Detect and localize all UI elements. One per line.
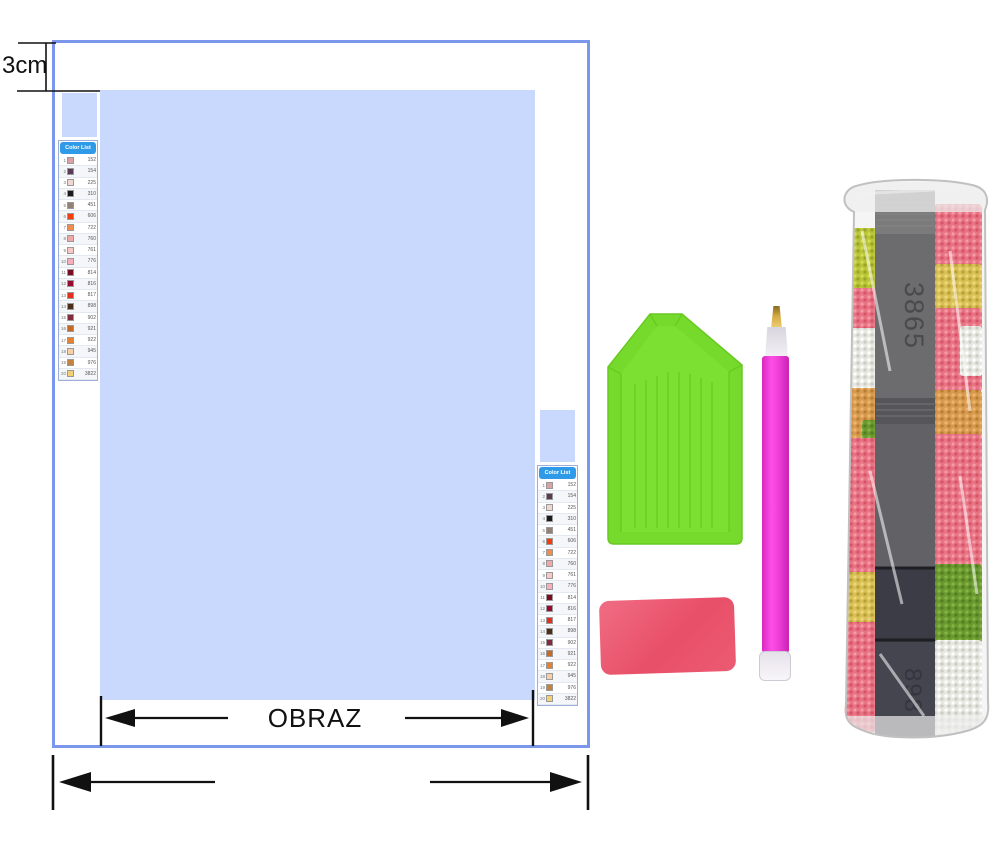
color-list-row: 2 154 xyxy=(59,166,97,177)
color-row-number: 14 xyxy=(60,304,66,309)
color-row-swatch xyxy=(546,504,553,511)
color-list-title: Color List xyxy=(60,142,96,154)
color-row-number: 15 xyxy=(60,315,66,320)
color-row-code: 451 xyxy=(554,527,576,533)
color-list-row: 4 310 xyxy=(538,514,577,525)
color-row-code: 921 xyxy=(554,651,576,657)
color-row-swatch xyxy=(67,190,74,197)
color-row-code: 814 xyxy=(75,270,96,276)
color-row-number: 12 xyxy=(539,606,545,611)
color-row-number: 9 xyxy=(539,573,545,578)
color-row-swatch xyxy=(546,617,553,624)
color-row-code: 922 xyxy=(75,337,96,343)
color-row-swatch xyxy=(546,482,553,489)
color-row-swatch xyxy=(67,224,74,231)
color-list-row: 7 722 xyxy=(538,548,577,559)
color-row-swatch xyxy=(546,695,553,702)
color-row-swatch xyxy=(546,549,553,556)
color-row-number: 7 xyxy=(60,225,66,230)
color-row-number: 10 xyxy=(539,584,545,589)
color-row-swatch xyxy=(67,157,74,164)
color-row-swatch xyxy=(67,168,74,175)
color-row-number: 6 xyxy=(60,214,66,219)
color-list-row: 13 817 xyxy=(59,290,97,301)
color-row-code: 760 xyxy=(554,561,576,567)
color-row-swatch xyxy=(67,292,74,299)
color-row-number: 7 xyxy=(539,550,545,555)
color-row-swatch xyxy=(67,303,74,310)
color-row-number: 2 xyxy=(60,169,66,174)
color-row-number: 14 xyxy=(539,629,545,634)
color-list-row: 20 3822 xyxy=(538,694,577,705)
color-row-swatch xyxy=(67,280,74,287)
color-row-code: 814 xyxy=(554,595,576,601)
color-row-number: 5 xyxy=(539,528,545,533)
canvas-corner-swatch-left xyxy=(62,93,97,137)
color-list-row: 9 761 xyxy=(59,245,97,256)
color-list-rows: 1 152 2 154 3 225 4 310 5 451 6 606 7 72… xyxy=(59,155,97,380)
color-row-swatch xyxy=(546,560,553,567)
color-list-row: 3 225 xyxy=(538,503,577,514)
color-list-row: 20 3822 xyxy=(59,369,97,380)
color-row-code: 225 xyxy=(554,505,576,511)
color-row-code: 902 xyxy=(554,640,576,646)
color-row-number: 18 xyxy=(539,674,545,679)
color-row-code: 761 xyxy=(75,247,96,253)
color-list-row: 8 760 xyxy=(538,559,577,570)
color-row-swatch xyxy=(67,202,74,209)
color-list-row: 13 817 xyxy=(538,615,577,626)
wax-pad xyxy=(599,597,736,675)
color-row-code: 902 xyxy=(75,315,96,321)
color-row-swatch xyxy=(67,325,74,332)
color-list-row: 18 945 xyxy=(538,671,577,682)
color-row-number: 1 xyxy=(539,483,545,488)
color-row-code: 154 xyxy=(554,493,576,499)
diamond-tray xyxy=(605,310,745,550)
bag-code-bottom: 898 xyxy=(899,668,926,714)
color-list-row: 5 451 xyxy=(59,200,97,211)
product-image: Color List 1 152 2 154 3 225 4 310 5 451… xyxy=(0,0,1000,862)
color-list-row: 3 225 xyxy=(59,178,97,189)
color-row-code: 154 xyxy=(75,168,96,174)
color-row-code: 976 xyxy=(75,360,96,366)
color-row-number: 9 xyxy=(60,248,66,253)
color-list-row: 17 922 xyxy=(538,660,577,671)
bag-code-top: 3865 xyxy=(899,282,929,350)
color-row-code: 817 xyxy=(75,292,96,298)
canvas-corner-swatch-right xyxy=(540,410,575,462)
color-list-row: 6 606 xyxy=(538,536,577,547)
color-row-code: 606 xyxy=(554,538,576,544)
color-row-code: 761 xyxy=(554,572,576,578)
color-list-right: Color List 1 152 2 154 3 225 4 310 5 451… xyxy=(537,465,578,706)
color-row-swatch xyxy=(67,359,74,366)
color-row-code: 152 xyxy=(554,482,576,488)
color-list-row: 12 816 xyxy=(538,604,577,615)
color-list-row: 1 152 xyxy=(59,155,97,166)
color-list-row: 15 902 xyxy=(59,313,97,324)
pen-end-cap xyxy=(759,651,791,681)
color-row-code: 922 xyxy=(554,662,576,668)
color-row-swatch xyxy=(67,258,74,265)
color-row-number: 16 xyxy=(539,651,545,656)
color-list-row: 12 816 xyxy=(59,279,97,290)
color-row-swatch xyxy=(546,583,553,590)
color-row-swatch xyxy=(546,572,553,579)
canvas-print-area xyxy=(100,90,535,700)
color-row-swatch xyxy=(67,314,74,321)
color-list-left: Color List 1 152 2 154 3 225 4 310 5 451… xyxy=(58,140,98,381)
color-row-number: 17 xyxy=(60,338,66,343)
color-row-number: 11 xyxy=(60,270,66,275)
color-row-code: 606 xyxy=(75,213,96,219)
color-list-row: 19 976 xyxy=(538,683,577,694)
color-list-row: 16 921 xyxy=(59,324,97,335)
color-row-swatch xyxy=(67,337,74,344)
total-width-arrows xyxy=(45,750,600,815)
color-row-code: 722 xyxy=(75,225,96,231)
color-list-row: 16 921 xyxy=(538,649,577,660)
color-row-number: 20 xyxy=(60,371,66,376)
color-row-number: 19 xyxy=(60,360,66,365)
color-row-code: 310 xyxy=(75,191,96,197)
color-row-number: 10 xyxy=(60,259,66,264)
color-row-number: 8 xyxy=(539,561,545,566)
diamond-drills-bag: 3865 898 xyxy=(832,176,994,751)
color-list-row: 14 898 xyxy=(59,301,97,312)
color-list-row: 11 814 xyxy=(538,593,577,604)
color-list-row: 2 154 xyxy=(538,491,577,502)
color-list-row: 8 760 xyxy=(59,234,97,245)
color-row-code: 722 xyxy=(554,550,576,556)
color-row-swatch xyxy=(67,179,74,186)
color-list-row: 15 902 xyxy=(538,638,577,649)
pen-collar xyxy=(765,327,788,358)
color-row-number: 16 xyxy=(60,326,66,331)
color-row-code: 976 xyxy=(554,685,576,691)
color-row-number: 6 xyxy=(539,539,545,544)
color-row-code: 945 xyxy=(75,348,96,354)
color-list-row: 4 310 xyxy=(59,189,97,200)
color-row-code: 3822 xyxy=(554,696,576,702)
color-row-code: 760 xyxy=(75,236,96,242)
color-row-swatch xyxy=(546,538,553,545)
color-row-code: 776 xyxy=(554,583,576,589)
color-list-row: 10 776 xyxy=(538,581,577,592)
color-row-swatch xyxy=(67,370,74,377)
color-row-code: 898 xyxy=(75,303,96,309)
color-row-number: 4 xyxy=(60,191,66,196)
picture-width-arrows xyxy=(95,688,540,750)
color-row-number: 11 xyxy=(539,595,545,600)
color-row-code: 225 xyxy=(75,180,96,186)
color-list-row: 5 451 xyxy=(538,525,577,536)
color-row-code: 816 xyxy=(554,606,576,612)
color-list-row: 1 152 xyxy=(538,480,577,491)
color-list-row: 18 945 xyxy=(59,346,97,357)
color-list-row: 9 761 xyxy=(538,570,577,581)
color-row-number: 12 xyxy=(60,281,66,286)
color-row-code: 3822 xyxy=(75,371,96,377)
color-row-swatch xyxy=(546,684,553,691)
color-list-row: 17 922 xyxy=(59,335,97,346)
color-list-title: Color List xyxy=(539,467,576,479)
color-row-number: 2 xyxy=(539,494,545,499)
color-row-number: 15 xyxy=(539,640,545,645)
color-list-row: 10 776 xyxy=(59,256,97,267)
diamond-pen xyxy=(762,356,789,653)
color-row-number: 3 xyxy=(539,505,545,510)
color-row-swatch xyxy=(546,628,553,635)
color-row-number: 13 xyxy=(539,618,545,623)
color-row-swatch xyxy=(67,235,74,242)
color-row-code: 898 xyxy=(554,628,576,634)
color-row-swatch xyxy=(546,639,553,646)
color-list-row: 19 976 xyxy=(59,358,97,369)
color-row-swatch xyxy=(546,605,553,612)
color-list-row: 7 722 xyxy=(59,223,97,234)
color-row-swatch xyxy=(546,515,553,522)
color-row-swatch xyxy=(67,247,74,254)
color-row-number: 5 xyxy=(60,203,66,208)
color-row-swatch xyxy=(546,650,553,657)
color-row-swatch xyxy=(546,493,553,500)
color-row-swatch xyxy=(546,527,553,534)
color-row-code: 451 xyxy=(75,202,96,208)
margin-bracket xyxy=(0,38,110,98)
color-row-number: 4 xyxy=(539,516,545,521)
color-row-code: 817 xyxy=(554,617,576,623)
color-row-swatch xyxy=(546,594,553,601)
color-row-swatch xyxy=(546,662,553,669)
color-row-code: 776 xyxy=(75,258,96,264)
color-row-number: 18 xyxy=(60,349,66,354)
color-list-rows: 1 152 2 154 3 225 4 310 5 451 6 606 7 72… xyxy=(538,480,577,705)
color-row-swatch xyxy=(546,673,553,680)
color-row-swatch xyxy=(67,269,74,276)
color-row-code: 310 xyxy=(554,516,576,522)
color-row-number: 8 xyxy=(60,236,66,241)
color-row-swatch xyxy=(67,213,74,220)
color-list-row: 14 898 xyxy=(538,626,577,637)
color-row-code: 816 xyxy=(75,281,96,287)
bead-packs-right xyxy=(934,204,982,732)
color-row-code: 921 xyxy=(75,326,96,332)
color-row-number: 3 xyxy=(60,180,66,185)
color-row-swatch xyxy=(67,348,74,355)
color-row-code: 152 xyxy=(75,157,96,163)
color-row-number: 13 xyxy=(60,293,66,298)
bag-center-strip: 3865 898 xyxy=(875,190,935,738)
color-list-row: 11 814 xyxy=(59,268,97,279)
color-row-code: 945 xyxy=(554,673,576,679)
color-row-number: 1 xyxy=(60,158,66,163)
pen-metal-tip xyxy=(771,306,782,329)
color-row-number: 17 xyxy=(539,663,545,668)
color-list-row: 6 606 xyxy=(59,211,97,222)
